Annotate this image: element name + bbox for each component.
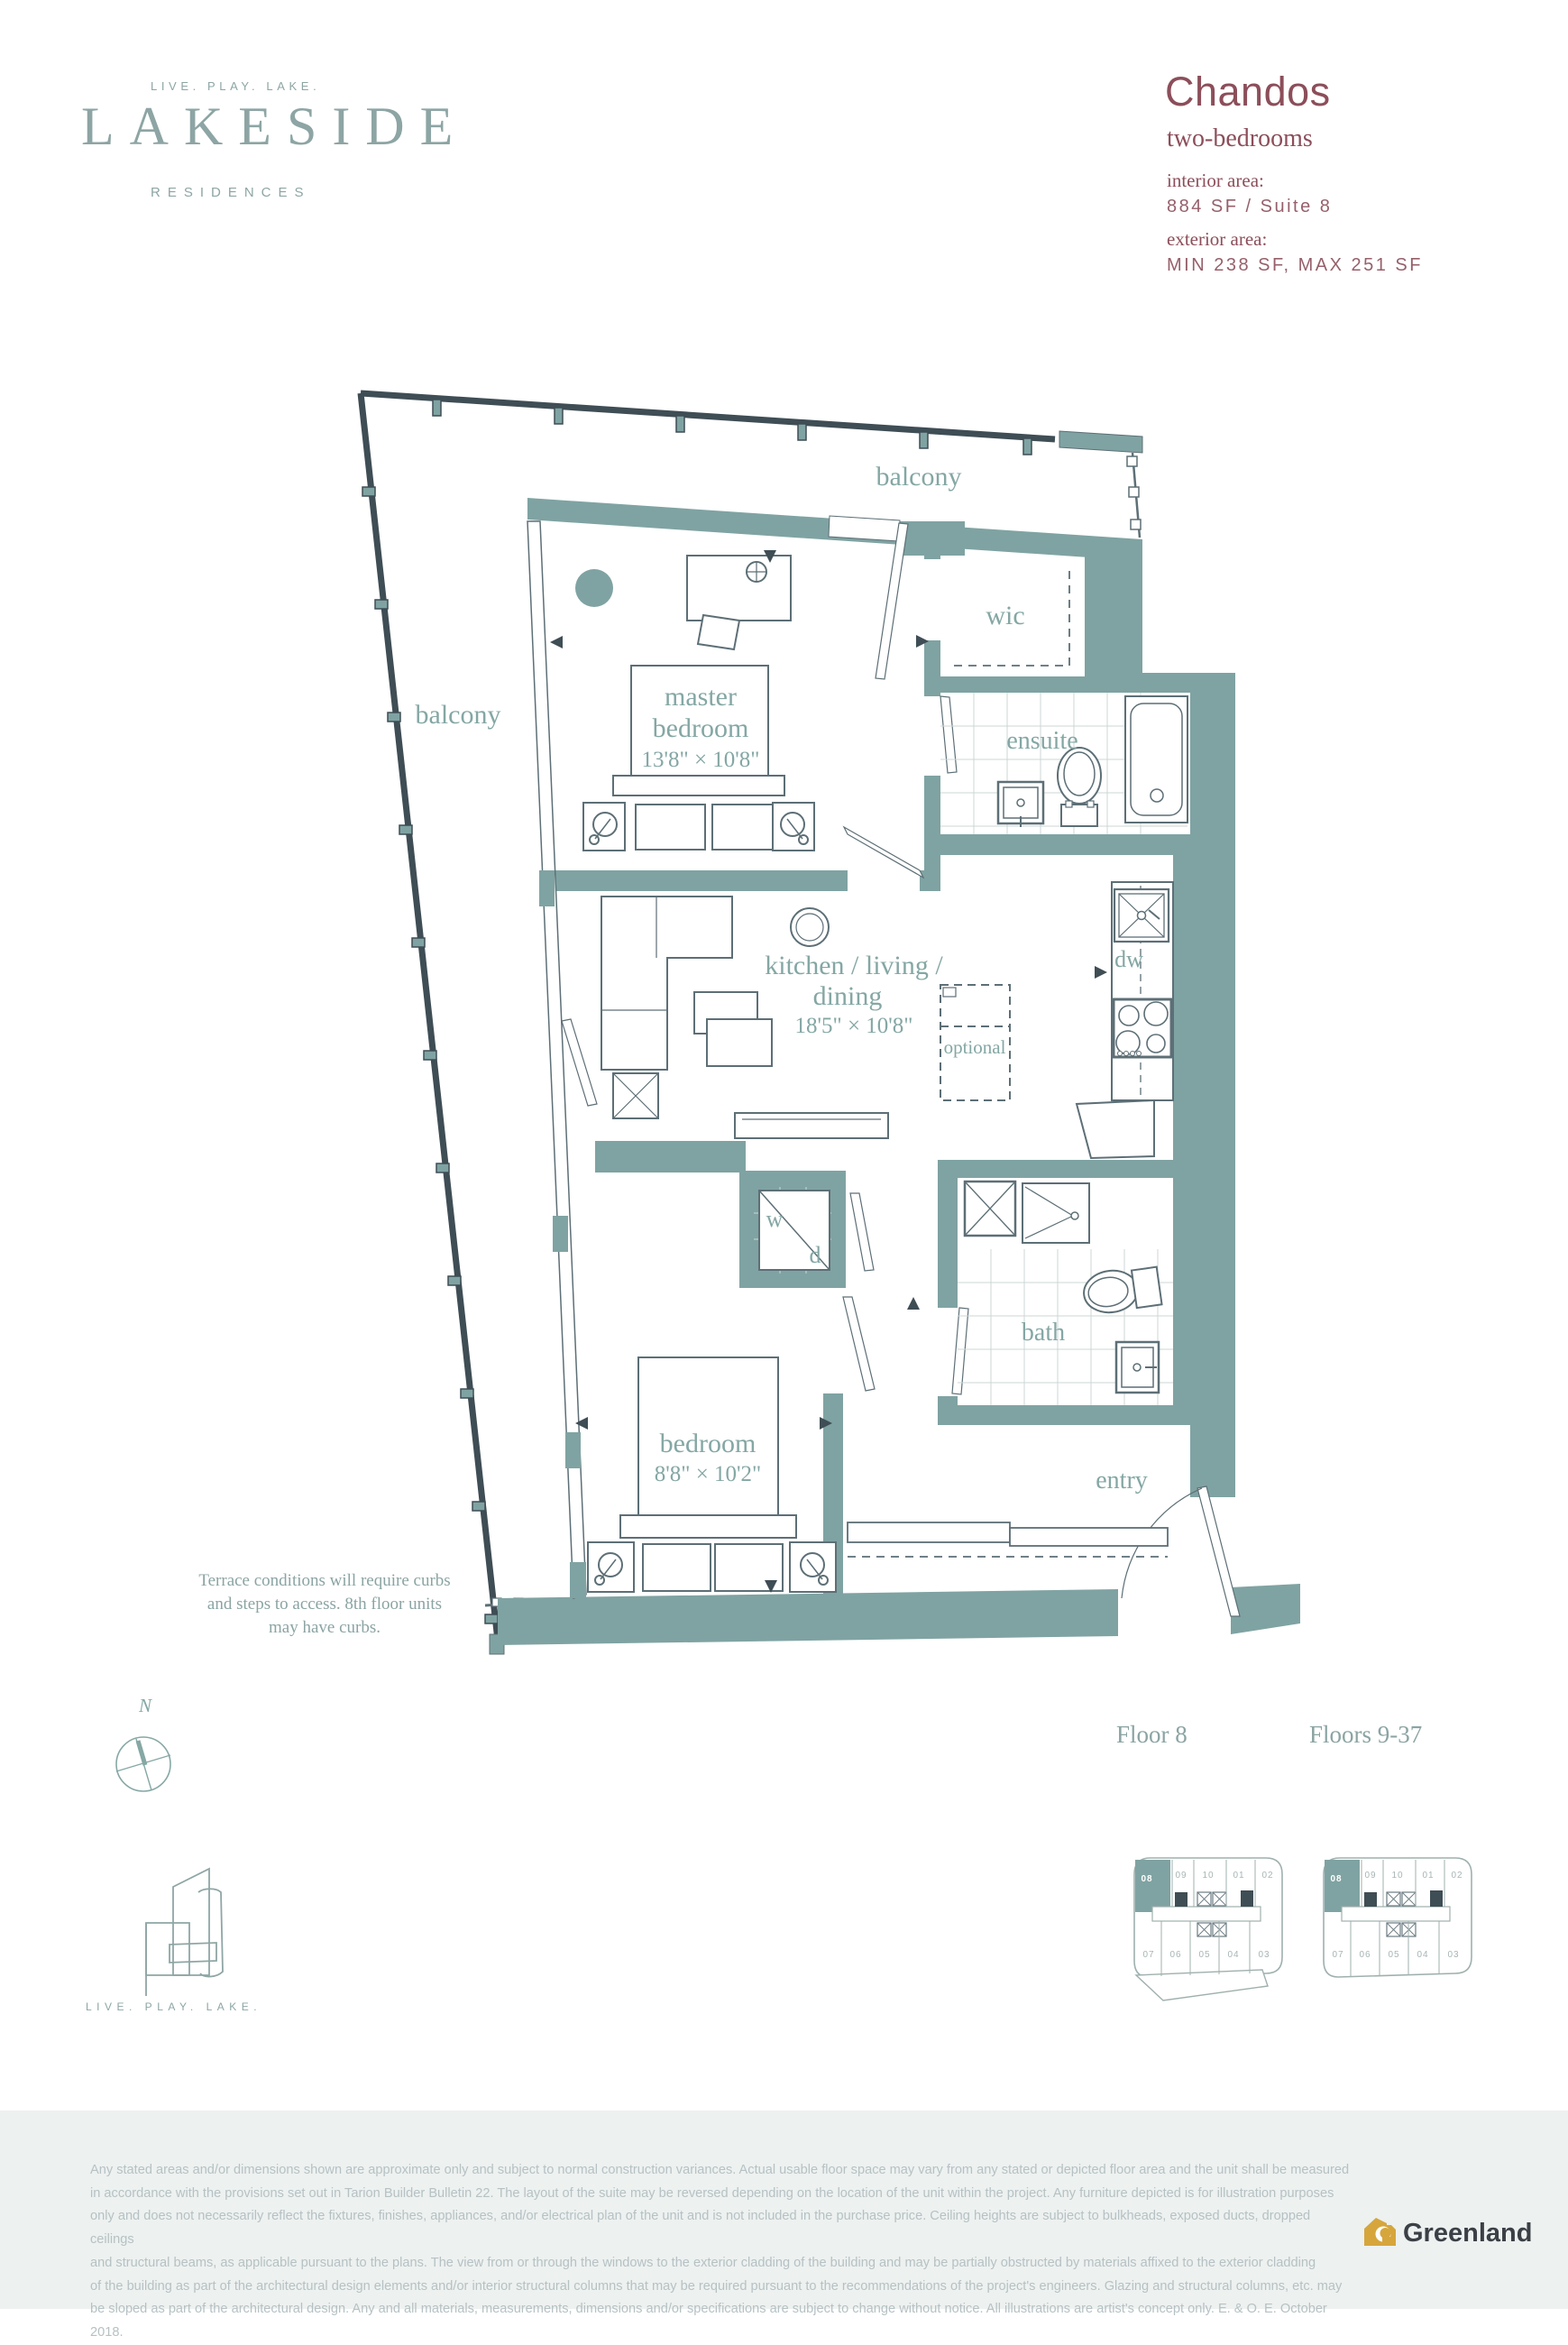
walls: [498, 498, 1300, 1645]
svg-text:07: 07: [1142, 1950, 1154, 1960]
svg-text:10: 10: [1202, 1871, 1214, 1881]
svg-text:02: 02: [1451, 1871, 1463, 1881]
brand-subname: RESIDENCES: [151, 185, 311, 200]
svg-text:02: 02: [1261, 1871, 1273, 1881]
exterior-area-value: MIN 238 SF, MAX 251 SF: [1167, 255, 1423, 276]
ensuite-label: ensuite: [1006, 727, 1077, 755]
svg-text:05: 05: [1388, 1950, 1399, 1960]
svg-text:09: 09: [1175, 1871, 1187, 1881]
dw-label: dw: [1114, 946, 1143, 972]
dryer-label: d: [810, 1242, 821, 1268]
svg-text:05: 05: [1198, 1950, 1210, 1960]
interior-area-label: interior area:: [1167, 170, 1264, 192]
keyplan-floor8: 08 09 10 01 02 07 06 05 04 03: [1125, 1851, 1292, 2013]
wic-label: wic: [986, 601, 1024, 630]
compass: N: [101, 1692, 191, 1818]
terrace-wedge: [1136, 1970, 1268, 2000]
svg-text:06: 06: [1169, 1950, 1181, 1960]
unit-title: Chandos: [1165, 69, 1331, 115]
unit-type: two-bedrooms: [1167, 124, 1313, 153]
compass-n-label: N: [138, 1695, 152, 1716]
svg-text:04: 04: [1227, 1950, 1239, 1960]
keyplan-floors-9-37: 08 09 10 01 02 07 06 05 04 03: [1315, 1851, 1481, 2013]
svg-text:01: 01: [1422, 1871, 1434, 1881]
balcony-top-label: balcony: [876, 462, 962, 492]
svg-text:09: 09: [1364, 1871, 1376, 1881]
entry-label: entry: [1096, 1467, 1148, 1494]
highlighted-unit: [1135, 1860, 1170, 1912]
kld-dims: 18'5" × 10'8": [794, 1014, 912, 1038]
footer-tagline: LIVE. PLAY. LAKE.: [86, 2000, 261, 2013]
brand-tagline: LIVE. PLAY. LAKE.: [151, 79, 320, 93]
interior-area-value: 884 SF / Suite 8: [1167, 197, 1332, 217]
master-label-1: master: [665, 682, 737, 712]
svg-text:07: 07: [1332, 1950, 1343, 1960]
kld-label-2: dining: [813, 981, 883, 1011]
window-wall: [527, 521, 597, 1598]
entry-closet: [848, 1522, 1168, 1557]
svg-text:10: 10: [1391, 1871, 1403, 1881]
bath-fixtures: [965, 1182, 1162, 1393]
brand-logo: LAKESIDE: [81, 96, 468, 158]
washer-label: w: [766, 1206, 784, 1232]
building-illustration: [90, 1865, 289, 1996]
ensuite-fixtures: [998, 696, 1187, 827]
bedroom-label: bedroom: [660, 1429, 756, 1458]
floors-9-37-label: Floors 9-37: [1309, 1721, 1422, 1749]
optional-label: optional: [944, 1036, 1006, 1058]
floor-plan: balcony balcony wic master bedroom 13'8"…: [343, 379, 1334, 1723]
bedroom-dims: 8'8" × 10'2": [655, 1462, 762, 1486]
svg-text:06: 06: [1359, 1950, 1371, 1960]
kld-label-1: kitchen / living /: [765, 951, 943, 980]
svg-text:01: 01: [1233, 1871, 1244, 1881]
svg-text:03: 03: [1258, 1950, 1270, 1960]
kitchen: [1077, 882, 1173, 1158]
exterior-area-label: exterior area:: [1167, 228, 1267, 251]
balcony-left-label: balcony: [416, 700, 501, 730]
bath-label: bath: [1022, 1319, 1065, 1347]
highlighted-unit: [1325, 1860, 1360, 1912]
floor-8-label: Floor 8: [1116, 1721, 1187, 1749]
terrace-note: Terrace conditions will require curbs an…: [171, 1569, 478, 1640]
svg-text:08: 08: [1141, 1874, 1152, 1884]
svg-text:04: 04: [1417, 1950, 1428, 1960]
master-dims: 13'8" × 10'8": [641, 748, 759, 772]
disclaimer: Any stated areas and/or dimensions shown…: [90, 2159, 1353, 2345]
svg-text:03: 03: [1447, 1950, 1459, 1960]
greenland-logo-icon: [1362, 2215, 1398, 2249]
greenland-logo-text: Greenland: [1403, 2219, 1532, 2248]
svg-text:08: 08: [1330, 1874, 1342, 1884]
master-label-2: bedroom: [653, 713, 749, 743]
